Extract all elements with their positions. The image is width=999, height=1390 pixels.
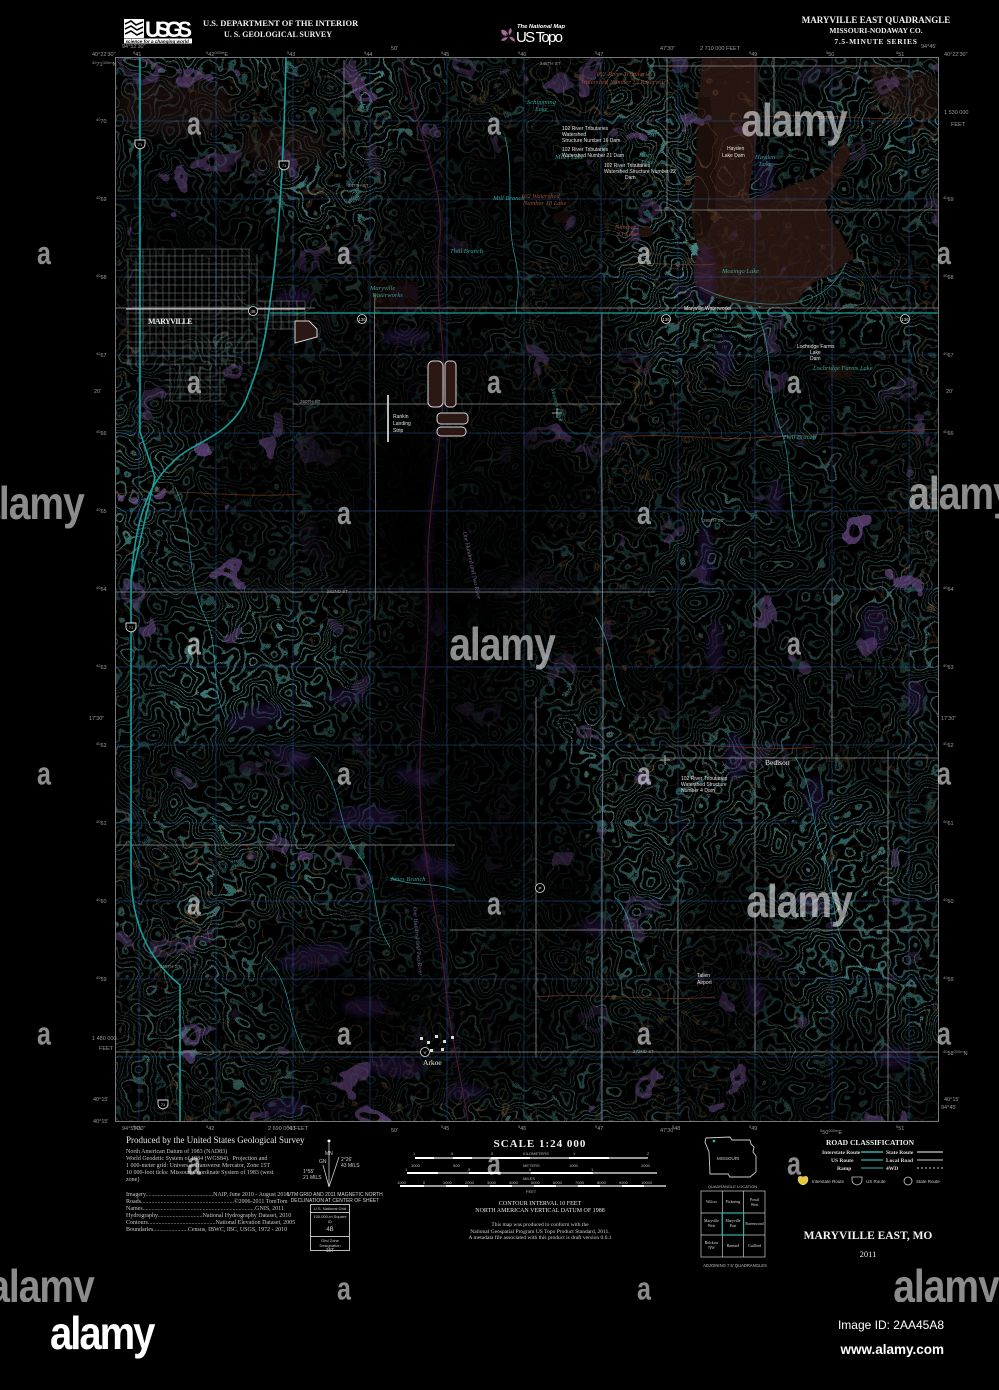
svg-text:Ravenwood: Ravenwood [745, 1222, 763, 1226]
svg-text:0: 0 [491, 1151, 494, 1156]
svg-text:Tallen: Tallen [697, 973, 710, 979]
svg-text:State Route: State Route [886, 1150, 914, 1156]
svg-text:Wilcox: Wilcox [706, 1200, 717, 1204]
svg-text:4WD: 4WD [886, 1166, 898, 1172]
svg-text:US Route: US Route [866, 1179, 886, 1184]
svg-text:State Route: State Route [916, 1179, 940, 1184]
svg-text:71: 71 [161, 1102, 166, 1107]
svg-text:Number 4 Dam: Number 4 Dam [681, 788, 715, 794]
svg-text:136: 136 [358, 317, 366, 322]
svg-text:Bedison: Bedison [765, 758, 790, 767]
svg-text:West: West [708, 1224, 716, 1228]
svg-text:FEET: FEET [526, 1189, 537, 1194]
svg-text:Waterworks: Waterworks [372, 292, 403, 299]
svg-text:3000: 3000 [487, 1180, 497, 1185]
svg-text:1: 1 [591, 1167, 594, 1172]
svg-text:GN: GN [319, 1159, 327, 1165]
svg-text:8000: 8000 [597, 1180, 607, 1185]
svg-text:102 Watershed: 102 Watershed [521, 193, 560, 200]
svg-text:Lake Dam: Lake Dam [722, 153, 745, 159]
svg-text:METERS: METERS [523, 1163, 540, 1168]
svg-text:MN: MN [325, 1151, 333, 1157]
svg-text:MISSOURI: MISSOURI [717, 1156, 739, 1161]
svg-text:US Topo: US Topo [516, 29, 563, 46]
svg-text:Barnard: Barnard [727, 1244, 739, 1248]
svg-text:71: 71 [129, 625, 134, 630]
svg-text:272ND ST: 272ND ST [633, 1049, 654, 1054]
svg-text:V: V [423, 1050, 426, 1055]
svg-text:0: 0 [423, 1180, 426, 1185]
svg-text:1: 1 [413, 1151, 416, 1156]
svg-text:East: East [730, 1224, 737, 1228]
svg-text:Number 18 Lake: Number 18 Lake [522, 200, 566, 207]
svg-text:P: P [538, 886, 541, 891]
svg-text:5000: 5000 [531, 1180, 541, 1185]
svg-text:NW: NW [708, 1246, 715, 1250]
svg-text:.5: .5 [450, 1151, 454, 1156]
svg-text:71: 71 [282, 163, 287, 168]
svg-text:Mill Branch: Mill Branch [492, 195, 525, 202]
svg-text:Guilford: Guilford [748, 1244, 761, 1248]
svg-text:1000: 1000 [397, 1180, 407, 1185]
svg-text:Mozingo Lake: Mozingo Lake [721, 268, 759, 275]
svg-text:Lake: Lake [758, 161, 772, 168]
svg-text:Bolckow: Bolckow [705, 1241, 719, 1245]
svg-text:268TH ST: 268TH ST [160, 964, 181, 969]
svg-text:1000: 1000 [411, 1163, 421, 1168]
svg-text:Structure Number 16 Dam: Structure Number 16 Dam [562, 138, 620, 144]
svg-text:23 Lake: 23 Lake [617, 231, 638, 238]
svg-text:102-River Tributaries: 102-River Tributaries [596, 71, 653, 78]
svg-text:1: 1 [405, 1167, 408, 1172]
svg-text:1000: 1000 [443, 1180, 453, 1185]
svg-text:Ramp: Ramp [837, 1166, 851, 1172]
svg-text:Possil: Possil [750, 1198, 759, 1202]
svg-text:10000: 10000 [641, 1180, 653, 1185]
svg-text:Hayden: Hayden [754, 154, 775, 161]
svg-text:4000: 4000 [509, 1180, 519, 1185]
svg-text:Watershed Number 21 Dam: Watershed Number 21 Dam [562, 153, 624, 159]
svg-text:Watershed Structure Number 22: Watershed Structure Number 22 [604, 169, 676, 175]
svg-text:KILOMETERS: KILOMETERS [523, 1151, 549, 1156]
svg-text:Schimming: Schimming [527, 99, 557, 106]
svg-text:7000: 7000 [575, 1180, 585, 1185]
svg-text:1: 1 [573, 1151, 576, 1156]
svg-text:6000: 6000 [553, 1180, 563, 1185]
svg-text:9000: 9000 [619, 1180, 629, 1185]
svg-text:Lochridge Farms Lake: Lochridge Farms Lake [812, 365, 873, 372]
svg-text:West: West [751, 1203, 759, 1207]
svg-text:Jones Branch: Jones Branch [390, 876, 426, 883]
svg-text:136: 136 [662, 317, 670, 322]
svg-text:.5: .5 [467, 1167, 471, 1172]
svg-text:262ND ST: 262ND ST [327, 589, 348, 594]
svg-text:2000: 2000 [641, 1163, 651, 1168]
svg-text:Airport: Airport [697, 980, 712, 986]
svg-text:Thill Branch: Thill Branch [783, 434, 816, 441]
svg-text:500: 500 [453, 1163, 460, 1168]
svg-text:Hayden: Hayden [727, 146, 744, 152]
svg-text:US Route: US Route [831, 1158, 854, 1164]
svg-text:Maryville: Maryville [704, 1219, 719, 1223]
svg-text:Dam: Dam [810, 356, 821, 362]
svg-text:21 MILS: 21 MILS [303, 1175, 322, 1181]
svg-text:2000: 2000 [465, 1180, 475, 1185]
svg-text:1000: 1000 [569, 1163, 579, 1168]
svg-text:246TH ST: 246TH ST [540, 61, 561, 66]
svg-text:Number: Number [614, 224, 636, 231]
svg-text:Local Road: Local Road [886, 1158, 913, 1164]
svg-text:Maryville: Maryville [369, 285, 395, 292]
svg-text:Interstate Route: Interstate Route [812, 1179, 845, 1184]
svg-text:Maryville Waterworks: Maryville Waterworks [684, 306, 732, 312]
svg-text:Interstate Route: Interstate Route [822, 1150, 861, 1156]
svg-text:246TH ST: 246TH ST [818, 115, 839, 120]
svg-text:Watershed Number 13 Reservoir: Watershed Number 13 Reservoir [581, 79, 666, 86]
svg-text:43 MILS: 43 MILS [341, 1163, 360, 1169]
svg-text:Dam: Dam [625, 175, 636, 181]
svg-text:Strip: Strip [393, 428, 404, 434]
svg-text:265TH ST: 265TH ST [703, 518, 724, 523]
svg-text:136: 136 [901, 317, 909, 322]
svg-text:Arkoe: Arkoe [423, 1058, 442, 1067]
svg-text:2: 2 [647, 1151, 650, 1156]
svg-text:71: 71 [138, 142, 143, 147]
svg-text:MARYVILLE: MARYVILLE [148, 317, 193, 326]
svg-text:Landing: Landing [393, 421, 411, 427]
svg-text:247TH ST: 247TH ST [348, 183, 369, 188]
svg-text:Pickering: Pickering [726, 1200, 741, 1204]
svg-text:Huey: Huey [638, 152, 653, 159]
svg-text:Lake: Lake [534, 106, 548, 113]
svg-text:260TH ST: 260TH ST [300, 399, 321, 404]
svg-text:Thill Branch: Thill Branch [450, 248, 483, 255]
svg-text:46: 46 [250, 309, 256, 314]
svg-text:Rankin: Rankin [393, 414, 409, 420]
svg-text:Maryville: Maryville [726, 1219, 741, 1223]
